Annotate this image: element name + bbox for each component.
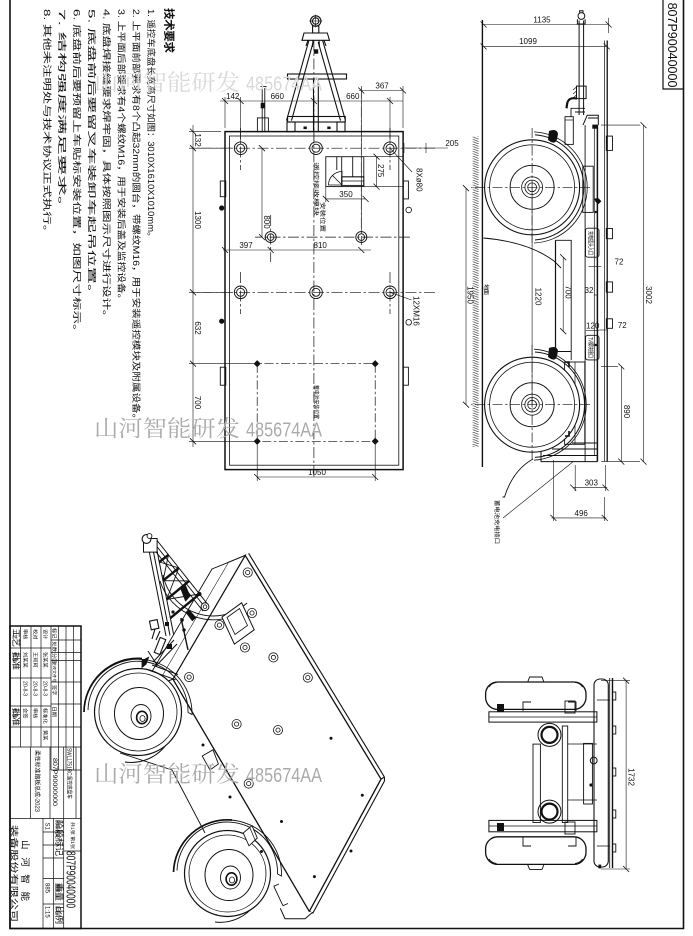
svg-text:32: 32 — [585, 286, 594, 295]
svg-text:142: 142 — [226, 92, 240, 101]
svg-text:72: 72 — [615, 258, 624, 267]
svg-text:12XM16: 12XM16 — [412, 296, 421, 326]
svg-text:20-8-3: 20-8-3 — [22, 681, 28, 696]
svg-text:20-8-3: 20-8-3 — [32, 681, 38, 696]
svg-text:660: 660 — [346, 92, 360, 101]
svg-text:397: 397 — [239, 241, 253, 250]
svg-text:485674AA: 485674AA — [246, 74, 323, 96]
svg-text:1950: 1950 — [466, 286, 475, 304]
svg-text:1135: 1135 — [533, 15, 551, 24]
svg-text:807P90040000: 807P90040000 — [665, 3, 679, 88]
svg-text:S1: S1 — [44, 823, 50, 831]
svg-text:807P90000000: 807P90000000 — [51, 758, 58, 806]
svg-text:485674AA: 485674AA — [246, 420, 323, 442]
svg-text:800: 800 — [262, 215, 271, 229]
svg-text:20-8-3: 20-8-3 — [42, 681, 48, 696]
svg-text:1732: 1732 — [627, 768, 636, 786]
svg-text:205: 205 — [445, 139, 459, 148]
svg-text:496: 496 — [575, 509, 589, 518]
svg-text:885: 885 — [44, 883, 50, 894]
svg-text:632: 632 — [193, 321, 202, 335]
svg-text:485674AA: 485674AA — [246, 765, 323, 787]
svg-text:350: 350 — [339, 190, 353, 199]
svg-text:807P90040000: 807P90040000 — [64, 851, 79, 908]
svg-text:1300: 1300 — [193, 211, 202, 229]
svg-text:303: 303 — [585, 479, 599, 488]
svg-text:1050: 1050 — [308, 468, 326, 477]
svg-text:700: 700 — [564, 285, 573, 299]
svg-text:1:15: 1:15 — [44, 906, 50, 918]
svg-text:1220: 1220 — [534, 288, 543, 306]
svg-text:3002: 3002 — [644, 286, 653, 304]
svg-text:72: 72 — [618, 321, 627, 330]
svg-text:700: 700 — [193, 396, 202, 410]
svg-text:1099: 1099 — [519, 37, 537, 46]
svg-text:275: 275 — [376, 164, 385, 178]
svg-text:120: 120 — [586, 321, 600, 330]
svg-text:367: 367 — [375, 82, 389, 91]
svg-text:810: 810 — [314, 241, 328, 250]
svg-text:890: 890 — [622, 405, 631, 419]
svg-text:8Xø80: 8Xø80 — [415, 168, 424, 192]
svg-text:132: 132 — [193, 133, 202, 147]
